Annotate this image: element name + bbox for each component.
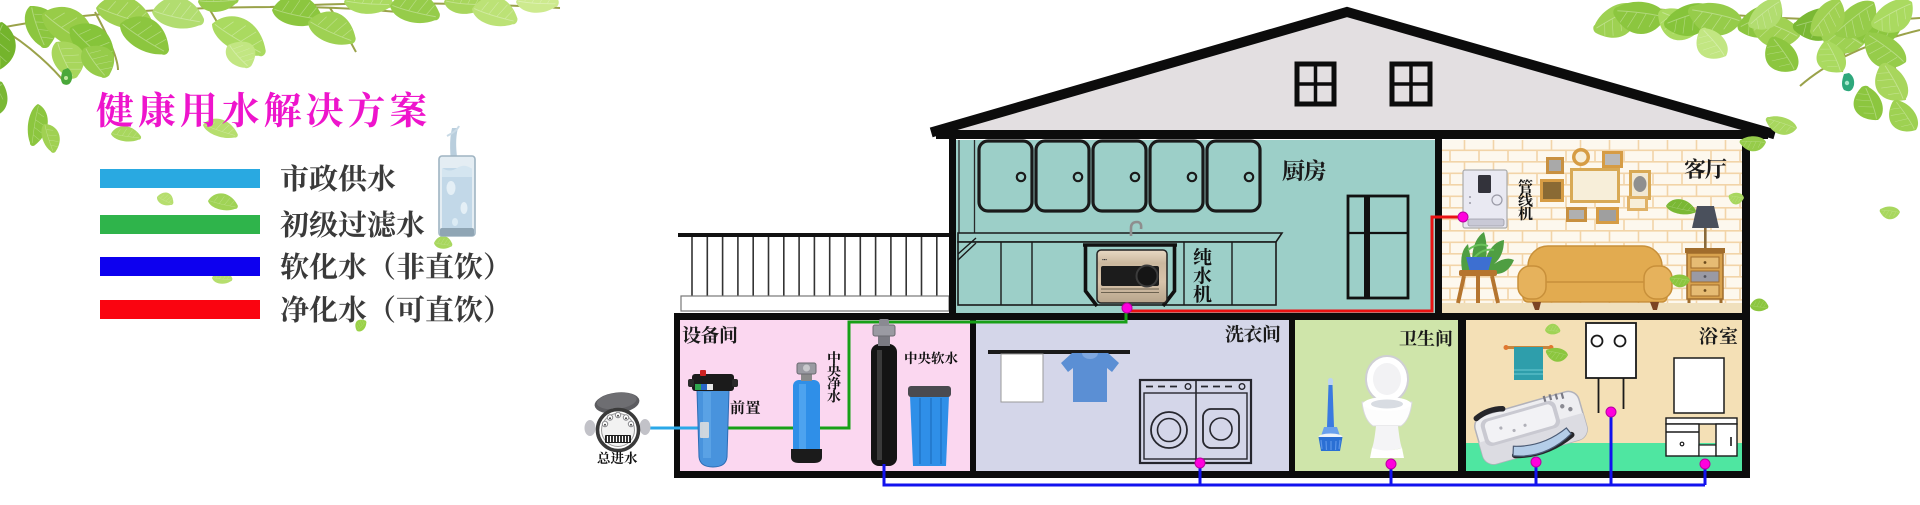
svg-text:▪▪▪: ▪▪▪ bbox=[1102, 257, 1107, 262]
